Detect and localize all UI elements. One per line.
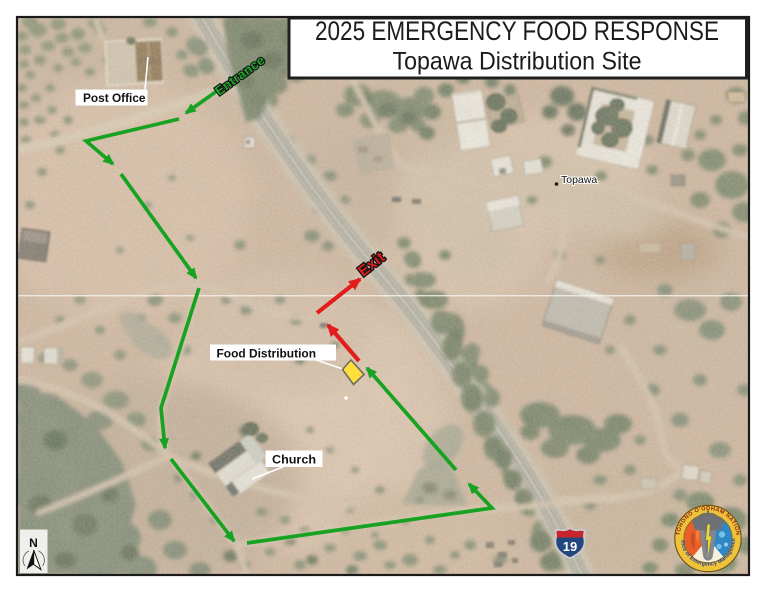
svg-text:2025 EMERGENCY FOOD RESPONSE: 2025 EMERGENCY FOOD RESPONSE <box>315 16 719 46</box>
svg-text:N: N <box>29 536 38 550</box>
svg-text:Topawa Distribution Site: Topawa Distribution Site <box>393 48 642 76</box>
svg-text:19: 19 <box>563 539 577 554</box>
svg-text:Topawa: Topawa <box>561 174 597 186</box>
svg-text:Food Distribution: Food Distribution <box>217 346 317 360</box>
svg-text:Church: Church <box>272 453 316 467</box>
svg-text:Post Office: Post Office <box>83 91 146 105</box>
